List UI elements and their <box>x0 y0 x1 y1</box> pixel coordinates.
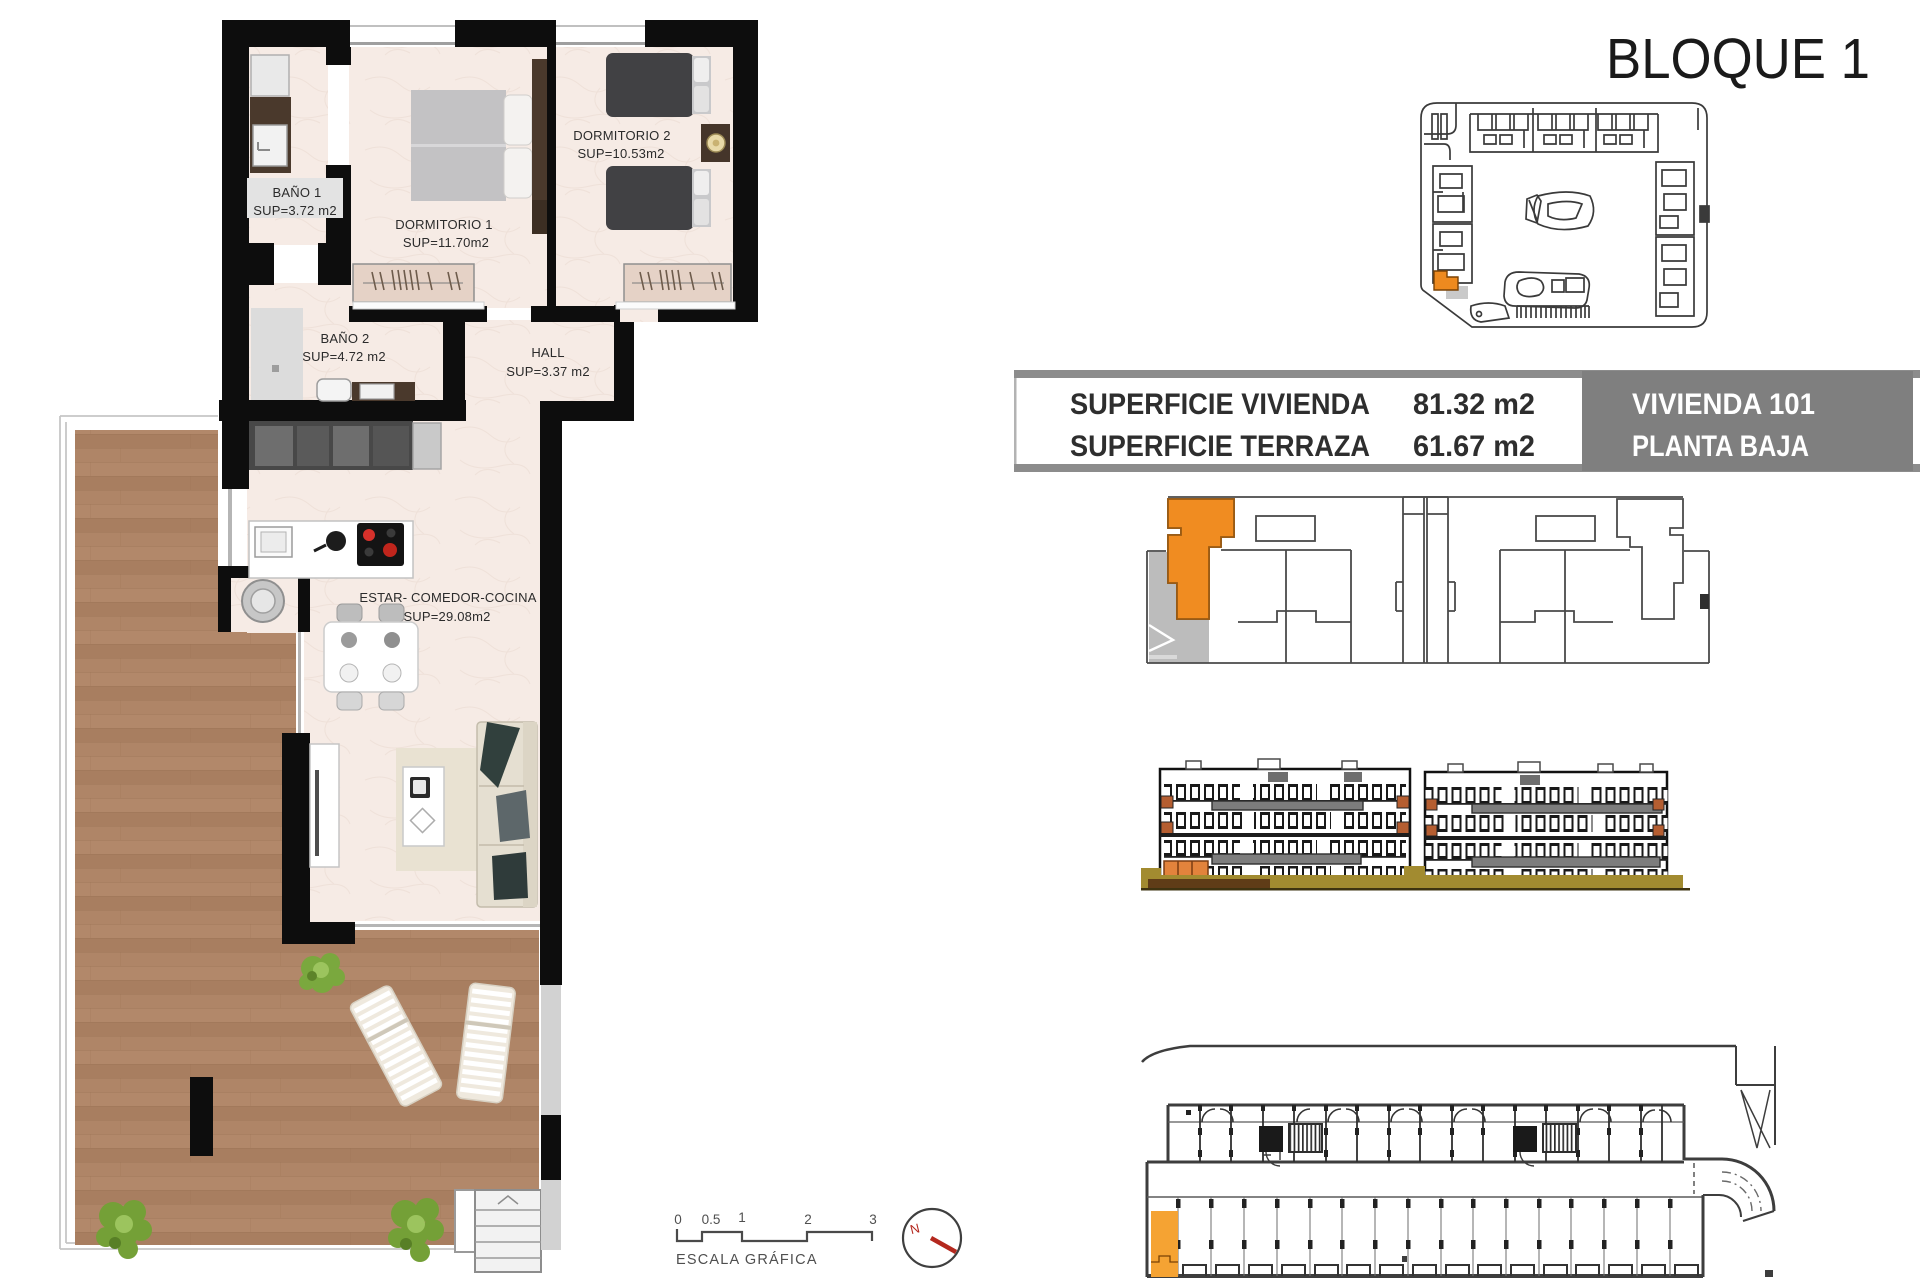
svg-text:DORMITORIO 2: DORMITORIO 2 <box>573 128 671 143</box>
svg-text:81.32 m2: 81.32 m2 <box>1413 388 1535 421</box>
svg-text:SUP=29.08m2: SUP=29.08m2 <box>403 609 490 624</box>
svg-text:BLOQUE 1: BLOQUE 1 <box>1606 27 1870 91</box>
svg-text:DORMITORIO 1: DORMITORIO 1 <box>395 217 493 232</box>
svg-text:2: 2 <box>804 1212 812 1227</box>
svg-text:1: 1 <box>738 1210 746 1225</box>
svg-text:0: 0 <box>674 1212 682 1227</box>
svg-text:3: 3 <box>869 1212 877 1227</box>
svg-text:BAÑO 2: BAÑO 2 <box>321 331 370 346</box>
svg-text:VIVIENDA 101: VIVIENDA 101 <box>1632 388 1815 421</box>
svg-text:0.5: 0.5 <box>702 1212 721 1227</box>
svg-text:SUPERFICIE TERRAZA: SUPERFICIE TERRAZA <box>1070 430 1370 463</box>
svg-text:SUP=4.72 m2: SUP=4.72 m2 <box>302 349 386 364</box>
svg-text:SUP=3.37 m2: SUP=3.37 m2 <box>506 364 590 379</box>
svg-text:61.67 m2: 61.67 m2 <box>1413 430 1535 463</box>
svg-text:SUP=3.72 m2: SUP=3.72 m2 <box>253 203 337 218</box>
svg-text:ESCALA GRÁFICA: ESCALA GRÁFICA <box>676 1251 818 1268</box>
svg-text:HALL: HALL <box>531 345 564 360</box>
svg-text:PLANTA BAJA: PLANTA BAJA <box>1632 430 1809 463</box>
svg-text:SUP=11.70m2: SUP=11.70m2 <box>403 235 489 250</box>
svg-text:ESTAR- COMEDOR-COCINA: ESTAR- COMEDOR-COCINA <box>359 590 536 605</box>
svg-text:BAÑO 1: BAÑO 1 <box>273 185 322 200</box>
svg-text:SUPERFICIE VIVIENDA: SUPERFICIE VIVIENDA <box>1070 388 1370 421</box>
svg-text:SUP=10.53m2: SUP=10.53m2 <box>577 146 664 161</box>
